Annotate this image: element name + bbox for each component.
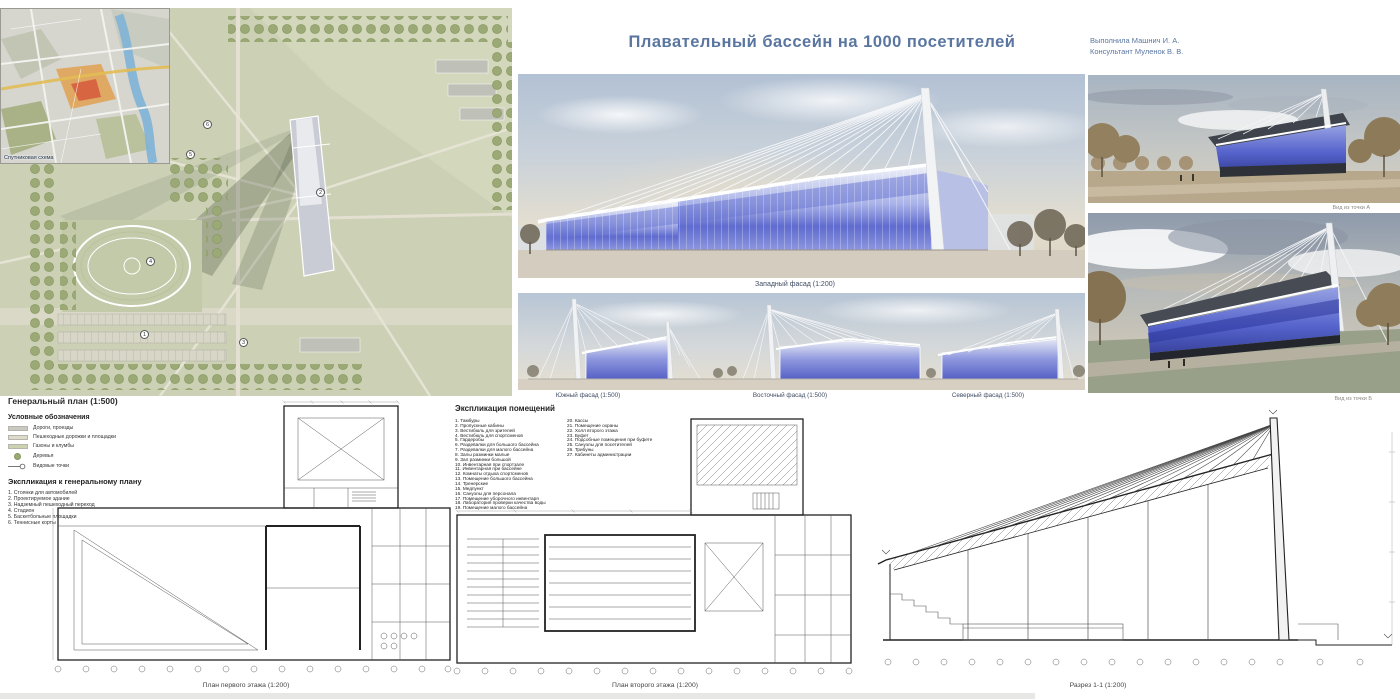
perspective-view-a-image xyxy=(1088,75,1400,203)
second-floor-plan-drawing xyxy=(453,415,853,677)
perspective-view-b-image xyxy=(1088,213,1400,393)
perspective-view-a-panel xyxy=(1088,75,1400,203)
site-marker: 3 xyxy=(239,338,248,347)
lawn-swatch-icon xyxy=(8,444,28,449)
site-marker: 1 xyxy=(140,330,149,339)
small-facades-drawing xyxy=(518,293,1085,390)
south-facade-caption: Южный фасад (1:500) xyxy=(556,392,621,399)
viewpoint-swatch-icon xyxy=(8,463,27,470)
page-title: Плавательный бассейн на 1000 посетителей xyxy=(537,33,1107,52)
view-a-caption: Вид из точки А xyxy=(1270,205,1370,211)
section-caption: Разрез 1-1 (1:200) xyxy=(1070,682,1127,689)
east-facade-caption: Восточный фасад (1:500) xyxy=(753,392,827,399)
presentation-board: 1 2 3 4 5 6 Спутниковая схема Плавательн… xyxy=(0,0,1400,700)
paths-swatch-icon xyxy=(8,435,28,440)
consultant-line: Консультант Муленок В. В. xyxy=(1090,47,1183,58)
second-floor-plan-panel xyxy=(453,415,853,677)
satellite-map-image xyxy=(1,9,169,163)
legend-label: Деревья xyxy=(33,453,53,459)
site-marker: 4 xyxy=(146,257,155,266)
rooms-title: Экспликация помещений xyxy=(455,404,700,413)
author-line: Выполнила Машнич И. А. xyxy=(1090,36,1183,47)
first-floor-plan-panel xyxy=(52,400,452,676)
authors-block: Выполнила Машнич И. А. Консультант Мулен… xyxy=(1090,36,1183,57)
small-facades-panel xyxy=(518,293,1085,390)
site-marker: 6 xyxy=(203,120,212,129)
west-facade-drawing xyxy=(518,74,1085,278)
west-facade-caption: Западный фасад (1:200) xyxy=(755,281,835,288)
section-panel xyxy=(868,402,1398,674)
site-marker: 2 xyxy=(316,188,325,197)
north-facade-caption: Северный фасад (1:500) xyxy=(952,392,1024,399)
west-facade-panel xyxy=(518,74,1085,278)
satellite-map-label: Спутниковая схема xyxy=(4,155,54,161)
first-floor-plan-drawing xyxy=(52,400,452,676)
first-floor-plan-caption: План первого этажа (1:200) xyxy=(203,682,290,689)
board-bottom-edge xyxy=(0,693,1035,699)
second-floor-plan-caption: План второго этажа (1:200) xyxy=(612,682,698,689)
satellite-map: Спутниковая схема xyxy=(0,8,170,164)
section-drawing xyxy=(868,402,1398,674)
roads-swatch-icon xyxy=(8,426,28,431)
perspective-view-b-panel xyxy=(1088,213,1400,393)
site-marker: 5 xyxy=(186,150,195,159)
tree-swatch-icon xyxy=(14,453,21,460)
